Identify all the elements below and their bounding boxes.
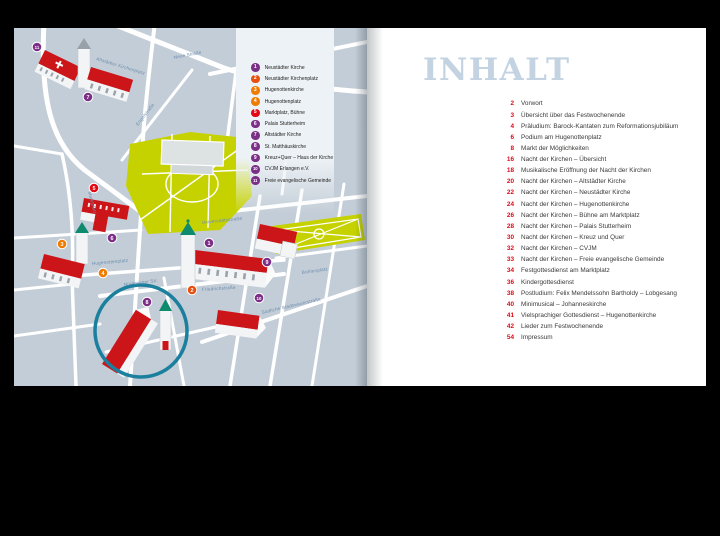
map-marker-10: 10: [254, 293, 264, 303]
legend-item: 10CVJM Erlangen e.V.: [251, 164, 334, 175]
toc-entry-label: Nacht der Kirchen – Übersicht: [521, 157, 606, 163]
svg-text:8: 8: [146, 300, 149, 306]
toc-entry-label: Präludium: Barock-Kantaten zum Reformati…: [521, 124, 678, 130]
legend-number-badge: 10: [251, 165, 260, 174]
toc-page-number: 40: [367, 302, 514, 308]
legend-item-label: Freie evangelische Gemeinde: [265, 178, 331, 184]
toc-page-number: 8: [367, 146, 514, 152]
legend-number-badge: 2: [251, 75, 260, 84]
toc-page: INHALT 2Vorwort3Übersicht über das Festw…: [367, 28, 706, 386]
map-marker-5: 5: [89, 183, 99, 193]
page-title: INHALT: [423, 52, 571, 88]
legend-item-label: Marktplatz, Bühne: [265, 110, 305, 116]
toc-row: 3Übersicht über das Festwochenende: [367, 110, 700, 121]
legend-number-badge: 8: [251, 142, 260, 151]
toc-row: 6Podium am Hugenottenplatz: [367, 132, 700, 143]
toc-page-number: 24: [367, 202, 514, 208]
toc-page-number: 38: [367, 291, 514, 297]
toc-row: 54Impressum: [367, 333, 700, 344]
legend-number-badge: 11: [251, 176, 260, 185]
svg-text:5: 5: [93, 186, 96, 192]
svg-text:4: 4: [102, 271, 105, 277]
svg-text:9: 9: [266, 260, 269, 266]
toc-page-number: 28: [367, 224, 514, 230]
legend-item: 4Hugenottenplatz: [251, 96, 334, 107]
map-legend: 1Neustädter Kirche2Neustädter Kirchenpla…: [236, 28, 334, 214]
legend-item: 5Marktplatz, Bühne: [251, 107, 334, 118]
toc-entry-label: Nacht der Kirchen – Freie evangelische G…: [521, 257, 664, 263]
toc-row: 4Präludium: Barock-Kantaten zum Reformat…: [367, 121, 700, 132]
toc-row: 41Vielsprachiger Gottesdienst – Hugenott…: [367, 311, 700, 322]
toc-entry-label: Nacht der Kirchen – Bühne am Marktplatz: [521, 213, 640, 219]
toc-entry-label: Festgottesdienst am Marktplatz: [521, 268, 610, 274]
toc-entry-label: Nacht der Kirchen – Palais Stutterheim: [521, 224, 631, 230]
toc-page-number: 22: [367, 190, 514, 196]
toc-row: 30Nacht der Kirchen – Kreuz und Quer: [367, 233, 700, 244]
legend-number-badge: 9: [251, 154, 260, 163]
map-marker-8: 8: [142, 297, 152, 307]
legend-number-badge: 4: [251, 97, 260, 106]
toc-row: 28Nacht der Kirchen – Palais Stutterheim: [367, 222, 700, 233]
legend-item-label: Altstädter Kirche: [265, 132, 302, 138]
toc-page-number: 36: [367, 280, 514, 286]
toc-row: 33Nacht der Kirchen – Freie evangelische…: [367, 255, 700, 266]
toc-page-number: 42: [367, 324, 514, 330]
map-marker-11: 11: [32, 42, 42, 52]
legend-item-label: St. Matthäuskirche: [265, 144, 306, 150]
toc-row: 34Festgottesdienst am Marktplatz: [367, 266, 700, 277]
toc-page-number: 32: [367, 246, 514, 252]
toc-page-number: 41: [367, 313, 514, 319]
toc-entry-label: Vielsprachiger Gottesdienst – Hugenotten…: [521, 313, 656, 319]
legend-item-label: Kreuz+Quer – Haus der Kirche: [265, 155, 334, 161]
svg-text:7: 7: [87, 95, 90, 101]
legend-item: 8St. Matthäuskirche: [251, 141, 334, 152]
toc-entry-label: Postludium: Felix Mendelssohn Bartholdy …: [521, 291, 677, 297]
toc-entry-label: Kindergottesdienst: [521, 280, 574, 286]
toc-row: 20Nacht der Kirchen – Altstädter Kirche: [367, 177, 700, 188]
toc-entry-label: Übersicht über das Festwochenende: [521, 113, 625, 119]
legend-item: 1Neustädter Kirche: [251, 62, 334, 73]
toc-row: 32Nacht der Kirchen – CVJM: [367, 244, 700, 255]
toc-row: 40Minimusical – Johanneskirche: [367, 300, 700, 311]
legend-item: 3Hugenottenkirche: [251, 85, 334, 96]
toc-row: 26Nacht der Kirchen – Bühne am Marktplat…: [367, 210, 700, 221]
toc-row: 24Nacht der Kirchen – Hugenottenkirche: [367, 199, 700, 210]
toc-entry-label: Musikalische Eröffnung der Nacht der Kir…: [521, 168, 651, 174]
map-marker-2: 2: [187, 285, 197, 295]
legend-list: 1Neustädter Kirche2Neustädter Kirchenpla…: [251, 62, 334, 186]
toc-page-number: 26: [367, 213, 514, 219]
toc-entry-label: Minimusical – Johanneskirche: [521, 302, 606, 308]
toc-entry-label: Nacht der Kirchen – Altstädter Kirche: [521, 179, 626, 185]
toc-entry-label: Lieder zum Festwochenende: [521, 324, 603, 330]
legend-item: 9Kreuz+Quer – Haus der Kirche: [251, 152, 334, 163]
legend-item: 2Neustädter Kirchenplatz: [251, 73, 334, 84]
legend-number-badge: 1: [251, 63, 260, 72]
toc-page-number: 18: [367, 168, 514, 174]
toc-row: 42Lieder zum Festwochenende: [367, 322, 700, 333]
svg-text:6: 6: [111, 236, 114, 242]
map-marker-9: 9: [262, 257, 272, 267]
legend-item: 7Altstädter Kirche: [251, 130, 334, 141]
legend-number-badge: 6: [251, 120, 260, 129]
toc-page-number: 4: [367, 124, 514, 130]
svg-text:3: 3: [61, 242, 64, 248]
toc-entry-label: Nacht der Kirchen – Neustädter Kirche: [521, 190, 630, 196]
map-marker-3: 3: [57, 239, 67, 249]
toc-entry-label: Vorwort: [521, 101, 543, 107]
toc-row: 18Musikalische Eröffnung der Nacht der K…: [367, 166, 700, 177]
toc-page-number: 16: [367, 157, 514, 163]
toc-entry-label: Markt der Möglichkeiten: [521, 146, 589, 152]
toc-page-number: 33: [367, 257, 514, 263]
legend-item: 11Freie evangelische Gemeinde: [251, 175, 334, 186]
map-marker-4: 4: [98, 268, 108, 278]
toc-page-number: 2: [367, 101, 514, 107]
toc-page-number: 30: [367, 235, 514, 241]
legend-number-badge: 5: [251, 109, 260, 118]
legend-item-label: Neustädter Kirche: [265, 65, 305, 71]
toc-page-number: 54: [367, 335, 514, 341]
map-page: Altstädter KirchenplatzNeue StraßeEngels…: [14, 28, 367, 386]
toc-page-number: 20: [367, 179, 514, 185]
legend-item-label: Hugenottenkirche: [265, 87, 304, 93]
map-marker-1: 1: [204, 238, 214, 248]
svg-text:2: 2: [191, 288, 194, 294]
legend-number-badge: 3: [251, 86, 260, 95]
svg-text:1: 1: [208, 241, 211, 247]
toc-row: 22Nacht der Kirchen – Neustädter Kirche: [367, 188, 700, 199]
legend-item-label: Hugenottenplatz: [265, 99, 301, 105]
toc-page-number: 6: [367, 135, 514, 141]
toc-entry-label: Nacht der Kirchen – Hugenottenkirche: [521, 202, 629, 208]
toc-entry-label: Nacht der Kirchen – CVJM: [521, 246, 597, 252]
toc: 2Vorwort3Übersicht über das Festwochenen…: [367, 99, 700, 344]
toc-row: 16Nacht der Kirchen – Übersicht: [367, 155, 700, 166]
legend-item-label: Neustädter Kirchenplatz: [265, 76, 318, 82]
legend-item-label: Palais Stutterheim: [265, 121, 306, 127]
svg-text:11: 11: [35, 45, 40, 50]
toc-entry-label: Impressum: [521, 335, 553, 341]
toc-row: 8Markt der Möglichkeiten: [367, 144, 700, 155]
toc-row: 36Kindergottesdienst: [367, 277, 700, 288]
toc-row: 2Vorwort: [367, 99, 700, 110]
map-marker-6: 6: [107, 233, 117, 243]
legend-item-label: CVJM Erlangen e.V.: [265, 166, 310, 172]
toc-entry-label: Podium am Hugenottenplatz: [521, 135, 602, 141]
toc-page-number: 34: [367, 268, 514, 274]
svg-text:10: 10: [257, 296, 262, 301]
toc-page-number: 3: [367, 113, 514, 119]
legend-item: 6Palais Stutterheim: [251, 118, 334, 129]
legend-number-badge: 7: [251, 131, 260, 140]
toc-entry-label: Nacht der Kirchen – Kreuz und Quer: [521, 235, 624, 241]
map-marker-7: 7: [83, 92, 93, 102]
toc-row: 38Postludium: Felix Mendelssohn Barthold…: [367, 288, 700, 299]
book-spread: Altstädter KirchenplatzNeue StraßeEngels…: [0, 0, 720, 536]
